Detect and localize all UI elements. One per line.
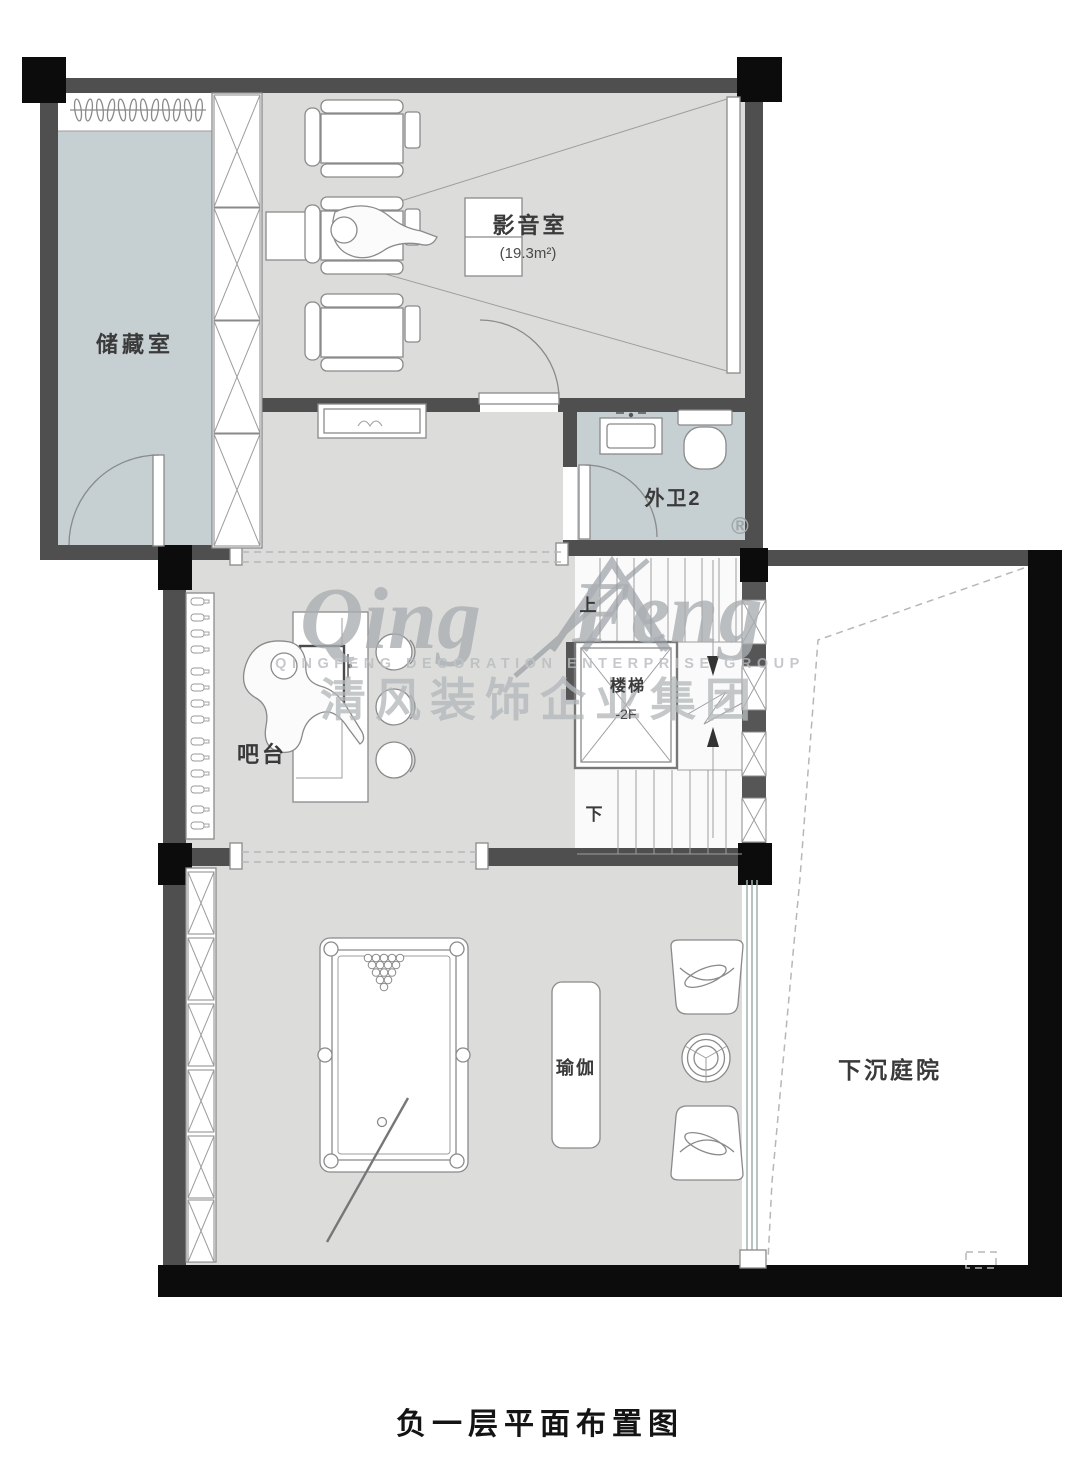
column — [158, 545, 192, 590]
room-storage — [58, 93, 212, 545]
column — [737, 57, 782, 102]
stairs-label: 楼梯 — [610, 676, 646, 695]
projection-screen — [727, 97, 740, 373]
storage-label: 储藏室 — [96, 332, 174, 357]
bottom-wall — [158, 1265, 1062, 1297]
round-side-table — [682, 1034, 730, 1082]
door-leaf — [153, 455, 164, 546]
armchair — [671, 1106, 743, 1180]
watermark-cn: 清风装饰企业集团 — [320, 674, 760, 726]
watermark-caps: QINGFENG DECORATION ENTERPRISE GROUP — [275, 656, 805, 672]
courtyard-dashed-boundary — [768, 568, 1024, 1260]
cue-ball — [378, 1118, 387, 1127]
door-leaf — [479, 393, 559, 404]
bath-label: 外卫2 — [644, 486, 701, 510]
bar-label: 吧台 — [237, 742, 287, 767]
column — [738, 843, 772, 885]
courtyard-right-wall — [1028, 550, 1062, 1297]
hallway-console — [318, 404, 426, 438]
cinema-area: (19.3m²) — [500, 245, 557, 262]
floor-plan-svg: Qing Feng QINGFENG DECORATION ENTERPRISE… — [0, 0, 1080, 1477]
glass-wall — [740, 880, 766, 1268]
projector-cabinet — [266, 212, 308, 260]
stairs-up-label: 上 — [580, 596, 597, 615]
watermark-script-left: Qing — [300, 571, 481, 668]
page-title: 负一层平面布置图 — [396, 1408, 684, 1441]
door-leaf — [579, 465, 590, 539]
column — [22, 57, 66, 103]
registered-mark: ® — [731, 513, 749, 540]
armchair — [671, 940, 743, 1014]
stairs-down-label: 下 — [586, 805, 603, 824]
courtyard-label: 下沉庭院 — [838, 1057, 942, 1083]
stairs-level: -2F — [616, 706, 637, 722]
floor-plan-page: Qing Feng QINGFENG DECORATION ENTERPRISE… — [0, 0, 1080, 1477]
cinema-label: 影音室 — [492, 213, 567, 238]
yoga-label: 瑜伽 — [556, 1057, 596, 1078]
toilet — [678, 410, 732, 469]
